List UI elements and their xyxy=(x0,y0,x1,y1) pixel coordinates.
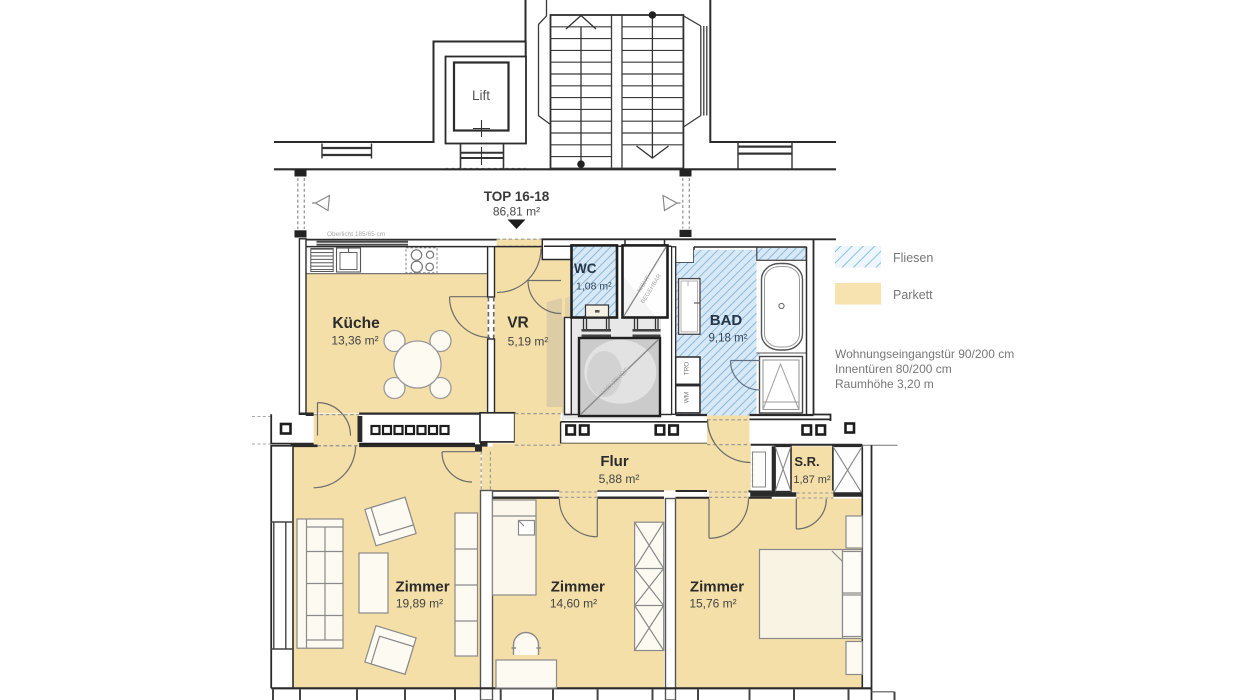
svg-text:Parkett: Parkett xyxy=(893,288,933,302)
svg-text:19,89 m²: 19,89 m² xyxy=(396,597,443,611)
svg-text:1,87 m²: 1,87 m² xyxy=(793,474,831,486)
svg-text:1,08 m²: 1,08 m² xyxy=(576,281,612,293)
svg-text:9,18 m²: 9,18 m² xyxy=(709,333,748,345)
svg-text:Innentüren 80/200 cm: Innentüren 80/200 cm xyxy=(835,362,952,376)
svg-text:BAD: BAD xyxy=(710,312,743,329)
svg-text:WC: WC xyxy=(574,261,597,276)
svg-text:5,19 m²: 5,19 m² xyxy=(508,335,549,349)
svg-text:Zimmer: Zimmer xyxy=(551,579,605,596)
svg-text:Flur: Flur xyxy=(600,453,628,470)
svg-text:14,60 m²: 14,60 m² xyxy=(550,597,597,611)
svg-text:5,88 m²: 5,88 m² xyxy=(599,472,640,486)
svg-text:13,36 m²: 13,36 m² xyxy=(331,334,378,348)
svg-text:Raumhöhe 3,20 m: Raumhöhe 3,20 m xyxy=(835,377,934,391)
svg-text:15,76 m²: 15,76 m² xyxy=(689,597,736,611)
svg-text:VR: VR xyxy=(507,315,529,332)
svg-text:Zimmer: Zimmer xyxy=(690,579,744,596)
svg-text:WM: WM xyxy=(684,392,691,404)
svg-text:TOP 16-18: TOP 16-18 xyxy=(484,189,550,204)
svg-text:Oberlicht 185/65 cm: Oberlicht 185/65 cm xyxy=(327,231,385,238)
svg-text:TRO: TRO xyxy=(684,362,691,376)
svg-text:Küche: Küche xyxy=(332,315,380,332)
svg-text:S.R.: S.R. xyxy=(794,454,819,469)
svg-text:86,81 m²: 86,81 m² xyxy=(493,205,540,219)
svg-text:Fliesen: Fliesen xyxy=(893,251,933,265)
svg-text:Zimmer: Zimmer xyxy=(395,579,449,596)
svg-text:Lift: Lift xyxy=(472,88,490,103)
svg-text:Wohnungseingangstür 90/200 cm: Wohnungseingangstür 90/200 cm xyxy=(835,347,1014,361)
